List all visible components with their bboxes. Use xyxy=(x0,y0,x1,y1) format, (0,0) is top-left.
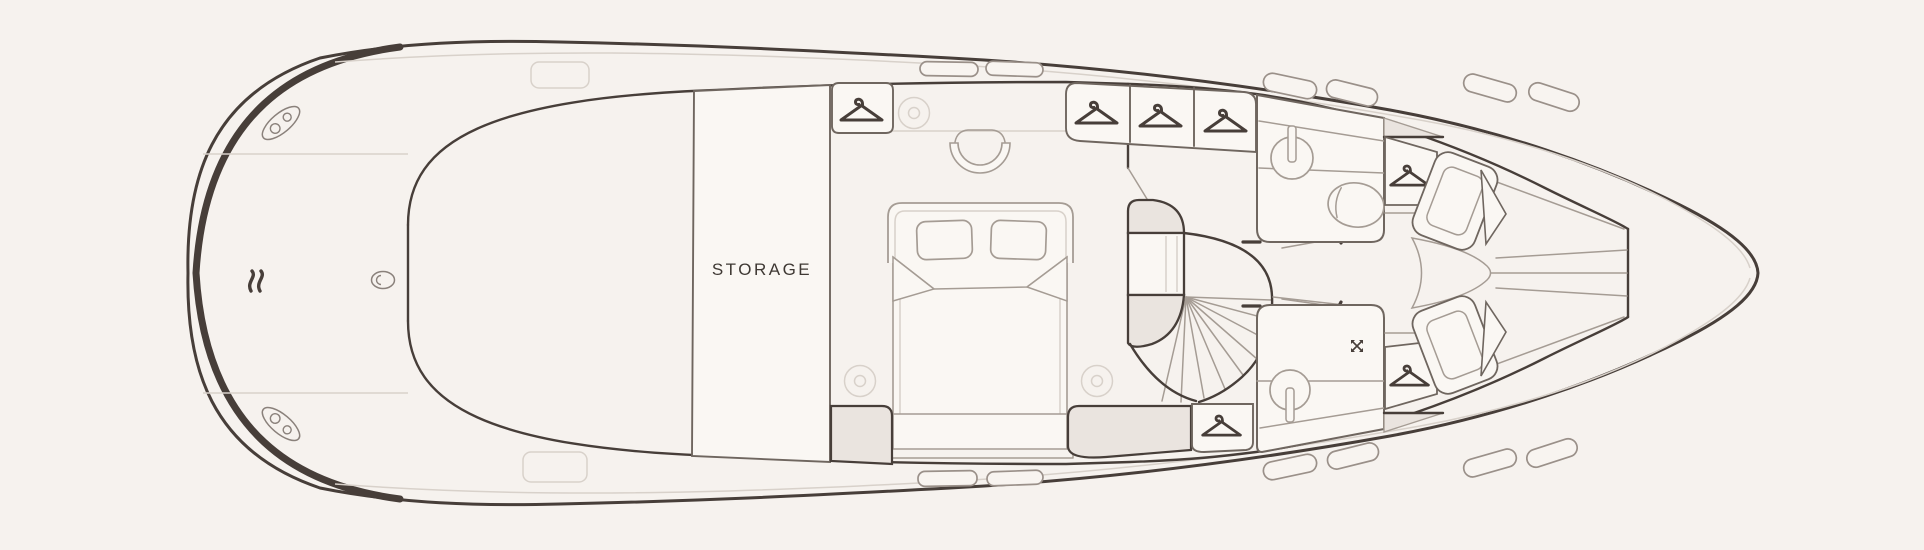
floor-aisle xyxy=(1412,238,1491,308)
window-hatch xyxy=(1526,80,1581,113)
stairwell-wall xyxy=(1130,344,1196,401)
window-hatch xyxy=(1462,72,1519,104)
window-hatch xyxy=(1462,447,1519,479)
closet xyxy=(832,83,893,133)
ceiling-light-icon xyxy=(845,366,876,397)
yacht-floor-plan: STORAGE xyxy=(0,0,1924,550)
stairwell-column xyxy=(1128,200,1184,347)
landing-edge xyxy=(1273,297,1344,305)
brand-flame-icon xyxy=(250,271,263,291)
deck-hatch xyxy=(523,452,587,482)
window-hatch xyxy=(918,470,977,486)
ceiling-light-icon xyxy=(899,98,930,129)
wall-wedge xyxy=(1384,413,1443,432)
storage-label: STORAGE xyxy=(712,260,812,279)
closet xyxy=(1192,404,1253,452)
storage-room: STORAGE xyxy=(692,85,830,462)
wall-wedge xyxy=(1384,118,1443,137)
window-hatch xyxy=(920,61,978,76)
wardrobe-bank xyxy=(1066,83,1256,152)
cabinet xyxy=(831,406,892,464)
faucet-icon xyxy=(1288,126,1296,162)
stair-tread xyxy=(1186,297,1267,340)
window-hatch xyxy=(986,61,1043,77)
stair-tread xyxy=(1186,297,1272,300)
deck-fitting-icon xyxy=(372,272,395,289)
pillow xyxy=(990,220,1046,260)
window-hatch xyxy=(987,470,1043,486)
yacht-floor-plan-page: STORAGE xyxy=(0,0,1924,550)
faucet-icon xyxy=(1286,388,1294,422)
cabinet xyxy=(1068,406,1191,458)
bed-foot-step xyxy=(888,449,1073,458)
deck-hatch xyxy=(531,62,589,88)
window-hatch xyxy=(1524,436,1579,469)
door-leaf xyxy=(1128,168,1147,199)
swim-platform xyxy=(203,101,408,446)
ceiling-light-icon xyxy=(1082,366,1113,397)
stair-tread xyxy=(1186,297,1204,398)
bathroom xyxy=(1257,95,1387,242)
vanity-stool xyxy=(950,130,1010,173)
pillow xyxy=(916,220,972,260)
double-bed xyxy=(888,203,1073,458)
shower-room xyxy=(1257,305,1384,452)
